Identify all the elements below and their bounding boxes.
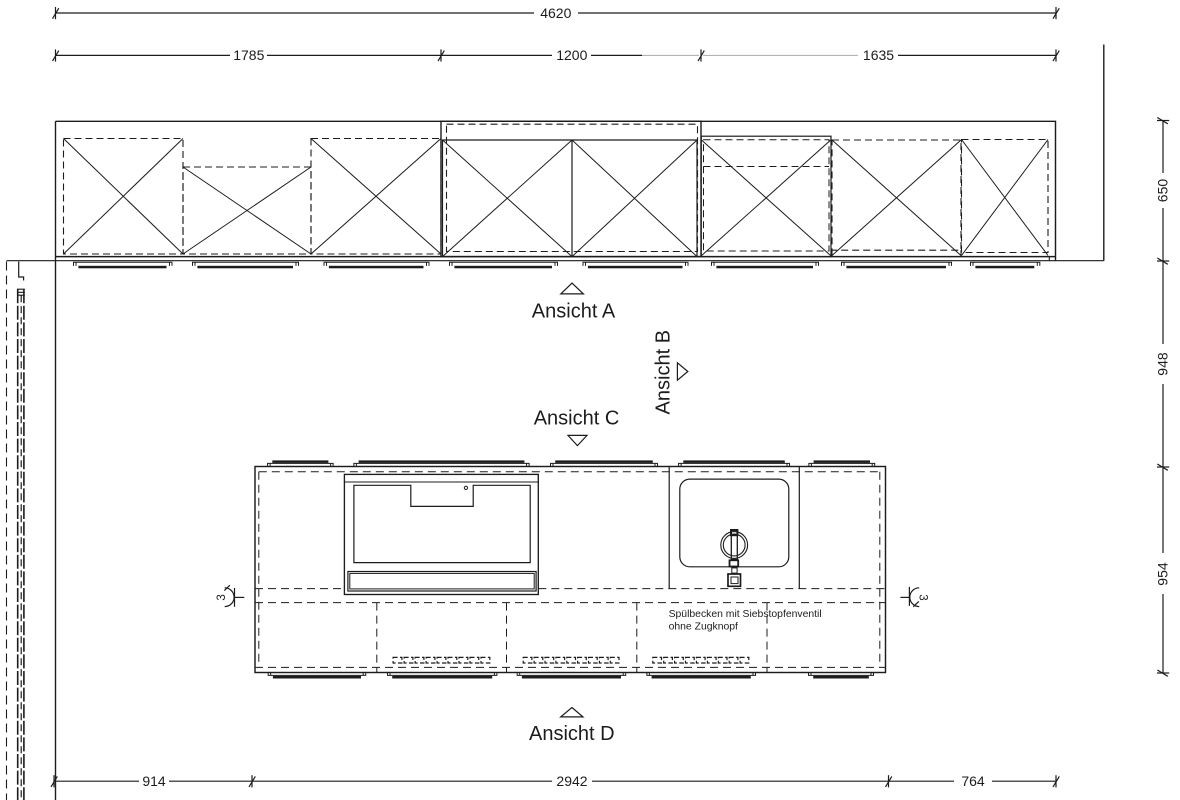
- svg-text:Ansicht C: Ansicht C: [534, 407, 620, 429]
- svg-text:1200: 1200: [556, 47, 587, 63]
- svg-text:Spülbecken mit Siebstopfenvent: Spülbecken mit Siebstopfenventil: [669, 609, 822, 620]
- svg-text:914: 914: [142, 773, 166, 789]
- svg-text:Ansicht A: Ansicht A: [532, 300, 616, 322]
- svg-text:Ansicht B: Ansicht B: [653, 330, 675, 414]
- svg-text:ohne Zugknopf: ohne Zugknopf: [669, 622, 738, 633]
- svg-text:3: 3: [216, 594, 228, 600]
- svg-text:764: 764: [961, 773, 985, 789]
- svg-text:1785: 1785: [233, 47, 264, 63]
- svg-text:3: 3: [917, 594, 929, 600]
- svg-text:650: 650: [1155, 179, 1171, 203]
- svg-text:1635: 1635: [863, 47, 894, 63]
- svg-text:4620: 4620: [540, 5, 571, 21]
- svg-text:948: 948: [1155, 352, 1171, 376]
- svg-text:2942: 2942: [556, 773, 587, 789]
- svg-text:Ansicht D: Ansicht D: [529, 723, 615, 745]
- svg-text:954: 954: [1155, 562, 1171, 586]
